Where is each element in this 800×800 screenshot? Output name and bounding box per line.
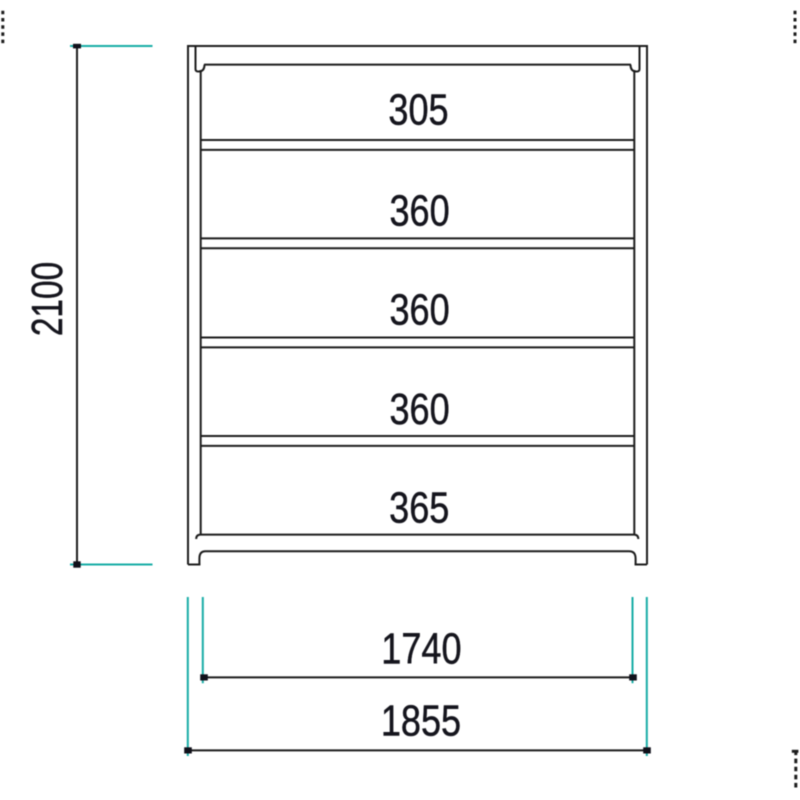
svg-text:2100: 2100 [24, 262, 72, 336]
svg-text:1740: 1740 [381, 624, 461, 673]
svg-text:360: 360 [390, 285, 450, 334]
svg-text:365: 365 [389, 483, 449, 532]
svg-text:360: 360 [390, 186, 450, 235]
svg-text:360: 360 [390, 385, 450, 434]
svg-text:1855: 1855 [381, 696, 461, 745]
svg-text:305: 305 [388, 85, 448, 134]
